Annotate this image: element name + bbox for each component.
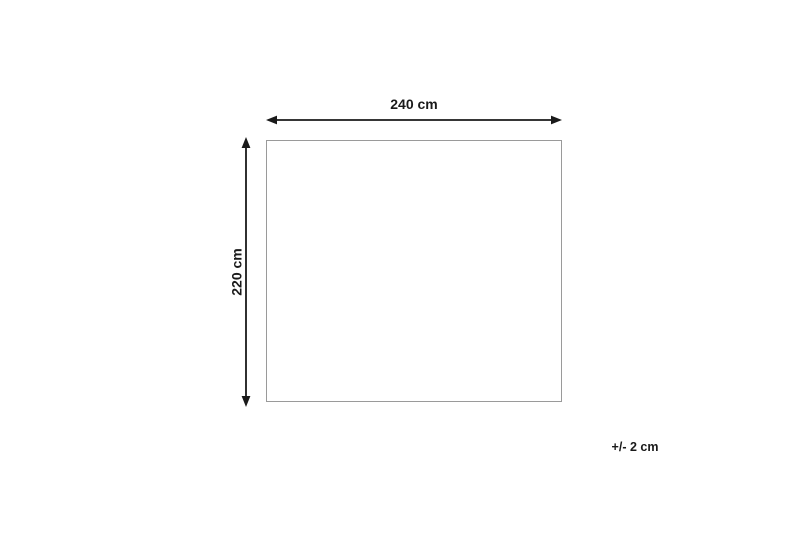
height-arrow-bottom-head-icon bbox=[242, 396, 251, 407]
product-outline bbox=[266, 140, 562, 402]
width-dimension-label: 240 cm bbox=[265, 96, 563, 113]
tolerance-label: +/- 2 cm bbox=[585, 440, 685, 455]
width-arrow-left-head-icon bbox=[266, 116, 277, 125]
width-dimension-arrow-icon bbox=[265, 112, 563, 128]
height-arrow-top-head-icon bbox=[242, 137, 251, 148]
height-dimension-label: 220 cm bbox=[229, 248, 246, 295]
dimension-diagram: 240 cm 220 cm +/- 2 cm bbox=[0, 0, 800, 533]
width-arrow-right-head-icon bbox=[551, 116, 562, 125]
